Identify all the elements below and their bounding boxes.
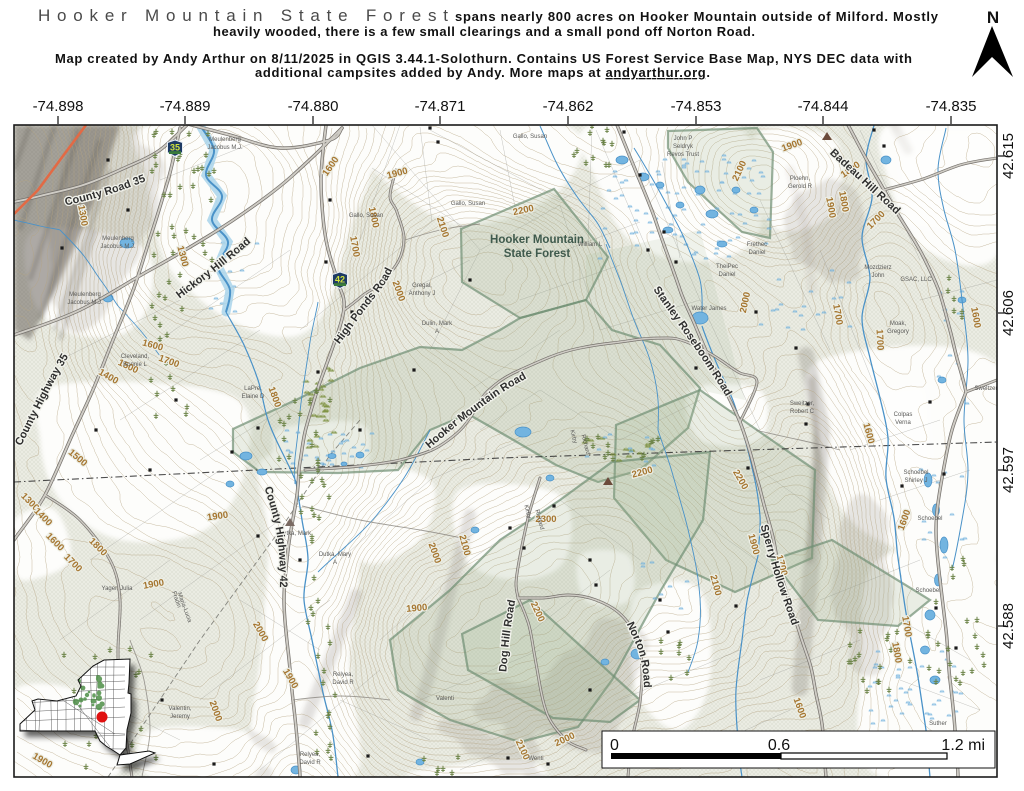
svg-text:State Forest: State Forest	[504, 248, 571, 260]
svg-text:Dulin, Mark: Dulin, Mark	[422, 321, 453, 327]
svg-text:Shirley J: Shirley J	[904, 478, 927, 484]
svg-text:Hooker Mountain: Hooker Mountain	[490, 234, 584, 246]
svg-text:Gallo, Susan: Gallo, Susan	[451, 201, 485, 207]
svg-text:-74.844: -74.844	[798, 98, 849, 115]
svg-text:Suther: Suther	[929, 721, 947, 727]
svg-text:-74.871: -74.871	[415, 98, 466, 115]
svg-text:David R: David R	[299, 760, 321, 766]
svg-text:additional campsites added by: additional campsites added by Andy. More…	[255, 65, 710, 80]
svg-text:Jeremy: Jeremy	[170, 714, 190, 720]
svg-text:Wenti: Wenti	[528, 756, 543, 762]
svg-text:0.6: 0.6	[768, 737, 790, 754]
svg-text:Jacobus M.J.: Jacobus M.J.	[207, 145, 243, 151]
svg-text:heavily wooded, there is a few: heavily wooded, there is a few small cle…	[213, 24, 755, 39]
svg-text:Jacobus M.J.: Jacobus M.J.	[100, 244, 136, 250]
svg-text:John: John	[871, 273, 884, 279]
svg-text:Moak,: Moak,	[890, 321, 907, 327]
svg-text:A: A	[435, 329, 439, 335]
svg-text:Revos Trust: Revos Trust	[667, 152, 699, 158]
svg-text:Colpas: Colpas	[894, 412, 913, 418]
svg-text:Frethec: Frethec	[747, 242, 767, 248]
svg-text:0: 0	[610, 737, 619, 754]
svg-text:1900: 1900	[406, 602, 428, 615]
svg-text:Schoebel: Schoebel	[903, 470, 928, 476]
svg-text:Anthony J: Anthony J	[409, 291, 436, 297]
svg-text:Sweitzer,: Sweitzer,	[790, 401, 815, 407]
svg-text:1.2 mi: 1.2 mi	[941, 737, 985, 754]
svg-text:Mozdzierz: Mozdzierz	[864, 265, 891, 271]
svg-text:Gregory: Gregory	[887, 329, 909, 335]
svg-text:Daniel: Daniel	[748, 250, 765, 256]
svg-text:Meulenberg: Meulenberg	[102, 236, 134, 242]
svg-text:Schoebel: Schoebel	[917, 516, 942, 522]
svg-text:Jacobus M.J.: Jacobus M.J.	[67, 300, 103, 306]
svg-text:-74.835: -74.835	[926, 98, 977, 115]
svg-text:Seldryk: Seldryk	[673, 144, 694, 150]
svg-text:35: 35	[170, 143, 180, 153]
svg-text:Valenti: Valenti	[436, 696, 454, 702]
svg-text:John P: John P	[674, 136, 693, 142]
svg-text:Elaine D: Elaine D	[242, 394, 265, 400]
svg-text:Daniel: Daniel	[718, 272, 735, 278]
svg-text:Gregal,: Gregal,	[412, 283, 432, 289]
svg-text:Relyea,: Relyea,	[300, 752, 321, 758]
svg-text:Yager, Julia: Yager, Julia	[102, 586, 134, 592]
svg-text:42: 42	[335, 275, 345, 285]
svg-text:LaPre,: LaPre,	[244, 386, 262, 392]
svg-text:A: A	[333, 560, 337, 566]
svg-text:Gallo, Susan: Gallo, Susan	[513, 134, 547, 140]
svg-text:Map created by Andy Arthur on: Map created by Andy Arthur on 8/11/2025 …	[55, 51, 912, 66]
svg-text:Verna: Verna	[895, 420, 911, 426]
svg-text:1700: 1700	[873, 329, 885, 351]
svg-text:GSAC, LLC: GSAC, LLC	[900, 277, 932, 283]
svg-text:-74.889: -74.889	[160, 98, 211, 115]
svg-text:Relyea,: Relyea,	[333, 672, 354, 678]
svg-text:-74.853: -74.853	[671, 98, 722, 115]
svg-text:Ploehn,: Ploehn,	[790, 176, 811, 182]
svg-text:spans nearly 800 acres on Hook: spans nearly 800 acres on Hooker Mountai…	[455, 9, 939, 24]
svg-text:-74.880: -74.880	[288, 98, 339, 115]
svg-text:Gallo, Susan: Gallo, Susan	[349, 213, 383, 219]
svg-text:-74.898: -74.898	[33, 98, 84, 115]
svg-text:Dutka, Mary: Dutka, Mary	[319, 552, 351, 558]
svg-text:Bonnie L: Bonnie L	[123, 362, 147, 368]
svg-text:Cleveland,: Cleveland,	[121, 354, 150, 360]
svg-text:Sweltzer: Sweltzer	[974, 386, 997, 392]
svg-text:Meulenberg: Meulenberg	[69, 292, 101, 298]
svg-text:Valentin,: Valentin,	[169, 706, 192, 712]
svg-text:Water James: Water James	[691, 306, 726, 312]
svg-text:David R: David R	[332, 680, 354, 686]
svg-text:Robert C: Robert C	[790, 409, 815, 415]
svg-text:Schoebel: Schoebel	[915, 588, 940, 594]
svg-text:TheiPec: TheiPec	[716, 264, 738, 270]
svg-text:-74.862: -74.862	[543, 98, 594, 115]
svg-text:Meulenberg: Meulenberg	[209, 137, 241, 143]
svg-text:Gerold R: Gerold R	[788, 184, 813, 190]
svg-text:N: N	[987, 8, 999, 27]
